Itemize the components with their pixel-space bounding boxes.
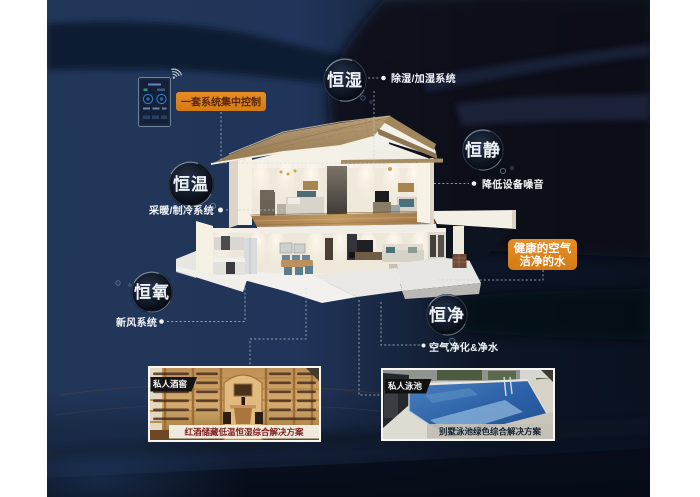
svg-text:恒温: 恒温: [173, 174, 209, 194]
svg-text:私人酒窖: 私人酒窖: [152, 379, 188, 389]
svg-text:新风系统: 新风系统: [116, 316, 157, 329]
svg-text:别墅泳池绿色综合解决方案: 别墅泳池绿色综合解决方案: [438, 427, 542, 437]
svg-text:恒氧: 恒氧: [134, 282, 170, 302]
svg-text:恒净: 恒净: [429, 305, 465, 325]
svg-text:除湿/加湿系统: 除湿/加湿系统: [391, 72, 456, 85]
svg-text:采暖/制冷系统: 采暖/制冷系统: [148, 204, 214, 217]
svg-text:恒湿: 恒湿: [327, 70, 363, 90]
svg-text:红酒储藏低温恒湿综合解决方案: 红酒储藏低温恒湿综合解决方案: [184, 427, 304, 437]
svg-text:空气净化&净水: 空气净化&净水: [429, 341, 499, 354]
svg-text:恒静: 恒静: [465, 140, 501, 160]
svg-text:降低设备噪音: 降低设备噪音: [482, 178, 544, 191]
svg-text:一套系统集中控制: 一套系统集中控制: [181, 96, 261, 109]
svg-text:洁净的水: 洁净的水: [520, 254, 566, 268]
svg-text:健康的空气: 健康的空气: [514, 241, 572, 255]
svg-text:私人泳池: 私人泳池: [387, 381, 423, 391]
